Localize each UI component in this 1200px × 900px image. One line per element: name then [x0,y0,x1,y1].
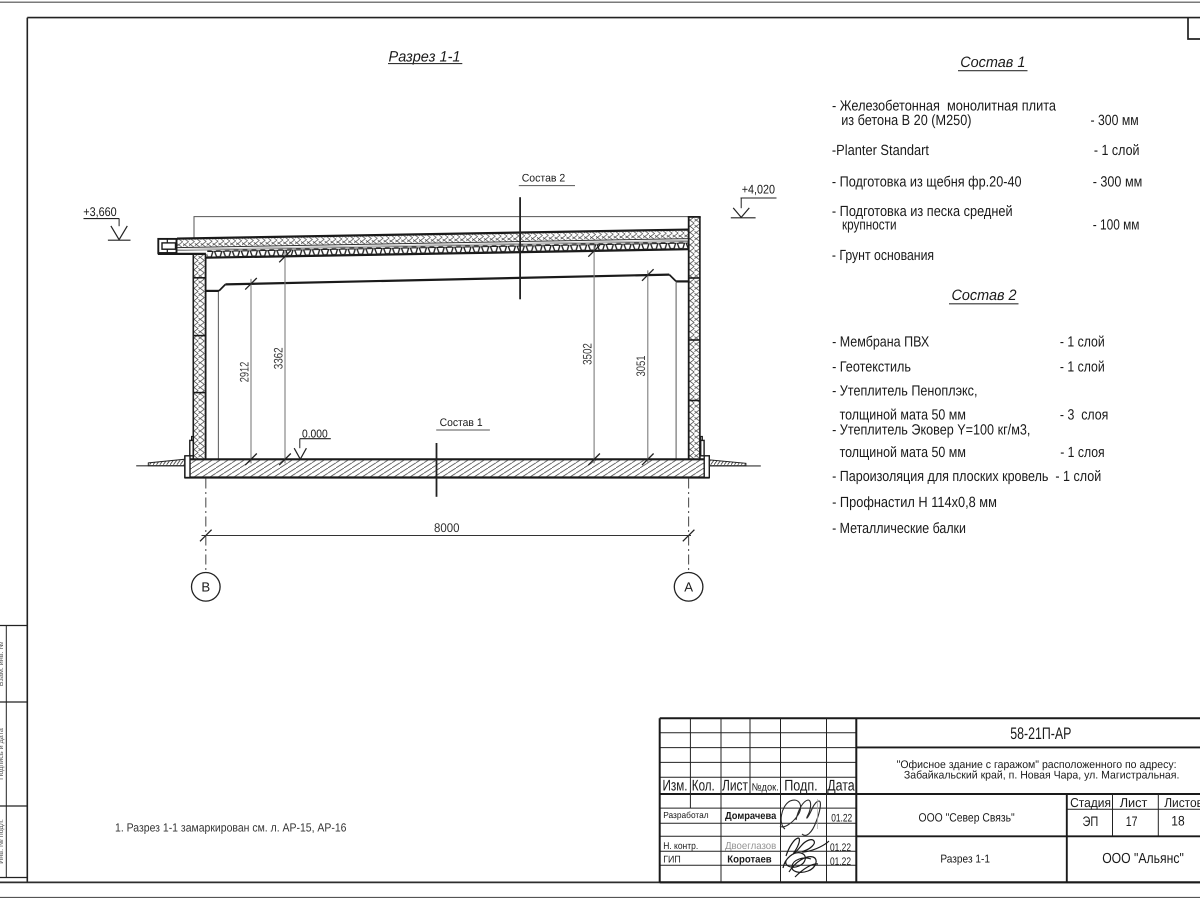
svg-text:3362: 3362 [271,347,285,369]
svg-text:2912: 2912 [237,362,251,383]
svg-text:Двоеглазов: Двоеглазов [725,841,776,852]
svg-text:Изм.: Изм. [663,778,688,795]
svg-text:01.22: 01.22 [831,812,852,824]
svg-text:- 100 мм: - 100 мм [1093,218,1140,234]
svg-text:Состав 1: Состав 1 [440,417,483,429]
svg-text:Дата: Дата [827,778,855,795]
svg-text:- 300 мм: - 300 мм [1091,113,1139,129]
svg-text:- Мембрана ПВХ: - Мембрана ПВХ [832,335,929,351]
svg-text:Подпись и дата: Подпись и дата [0,728,5,780]
svg-text:- Утеплитель Пеноплэкс,: - Утеплитель Пеноплэкс, [832,384,977,400]
svg-text:1. Разрез 1-1 замаркирован см.: 1. Разрез 1-1 замаркирован см. л. АР-15,… [115,820,347,834]
svg-text:Кол.: Кол. [692,778,715,795]
svg-text:Состав 1: Состав 1 [960,54,1025,71]
svg-text:- 1 слой: - 1 слой [1060,335,1105,351]
svg-text:В: В [201,580,210,595]
svg-text:- 1 слой: - 1 слой [1094,143,1140,159]
svg-text:Инв. № подл.: Инв. № подл. [0,819,5,864]
svg-text:толщиной мата 50 мм: толщиной мата 50 мм [840,407,966,423]
svg-text:- Металлические балки: - Металлические балки [832,521,966,537]
svg-text:крупности: крупности [842,218,897,234]
svg-text:Разработал: Разработал [663,810,709,820]
svg-text:Подп.: Подп. [784,778,818,795]
svg-text:01.22: 01.22 [830,842,851,854]
svg-text:№док.: №док. [752,781,779,793]
svg-text:Лист: Лист [1120,795,1148,810]
svg-text:01.22: 01.22 [830,856,851,868]
svg-text:- 300 мм: - 300 мм [1093,174,1143,190]
svg-text:ЭП: ЭП [1083,814,1099,829]
svg-text:Коротаев: Коротаев [727,854,771,865]
svg-text:-Planter Standart: -Planter Standart [832,143,929,159]
svg-text:Разрез 1-1: Разрез 1-1 [940,853,990,865]
svg-text:- 3 слоя: - 3 слоя [1060,407,1109,423]
svg-text:3502: 3502 [581,343,595,365]
svg-text:17: 17 [1126,814,1138,829]
svg-text:18: 18 [1171,814,1185,829]
svg-text:+4,020: +4,020 [742,183,775,197]
svg-text:Забайкальский край, п. Новая Ч: Забайкальский край, п. Новая Чара, ул. М… [904,769,1180,781]
svg-text:Листов: Листов [1164,795,1200,810]
svg-text:Взам. инв. №: Взам. инв. № [0,641,5,686]
svg-text:ГИП: ГИП [663,855,681,866]
svg-text:3051: 3051 [634,355,648,376]
svg-text:из бетона В 20 (М250): из бетона В 20 (М250) [841,113,971,129]
svg-text:Состав 2: Состав 2 [952,287,1018,304]
svg-text:А: А [684,580,693,595]
svg-text:- 1 слой: - 1 слой [1060,360,1105,376]
svg-text:ООО "Север Связь": ООО "Север Связь" [919,810,1015,824]
svg-text:толщиной мата 50 мм: толщиной мата 50 мм [840,445,966,461]
svg-text:8000: 8000 [434,521,460,535]
svg-text:- Пароизоляция для плоских кро: - Пароизоляция для плоских кровель - 1 с… [832,469,1101,485]
svg-text:Домрачева: Домрачева [725,811,777,822]
svg-text:Стадия: Стадия [1070,795,1111,810]
svg-text:- Геотекстиль: - Геотекстиль [832,360,911,376]
svg-text:- 1 слоя: - 1 слоя [1060,445,1105,461]
svg-text:ООО "Альянс": ООО "Альянс" [1102,851,1184,867]
svg-text:Н. контр.: Н. контр. [663,841,698,852]
svg-text:- Подготовка из щебня фр.20-40: - Подготовка из щебня фр.20-40 [832,174,1022,190]
svg-text:+3,660: +3,660 [83,205,116,219]
svg-text:- Грунт основания: - Грунт основания [832,248,934,264]
svg-text:- Профнастил Н 114х0,8 мм: - Профнастил Н 114х0,8 мм [832,495,997,511]
svg-text:58-21П-АР: 58-21П-АР [1010,724,1071,743]
svg-text:Состав 2: Состав 2 [522,173,566,185]
svg-text:Лист: Лист [722,778,748,795]
svg-text:- Утеплитель Эковер Y=100 кг/м: - Утеплитель Эковер Y=100 кг/м3, [832,423,1030,439]
